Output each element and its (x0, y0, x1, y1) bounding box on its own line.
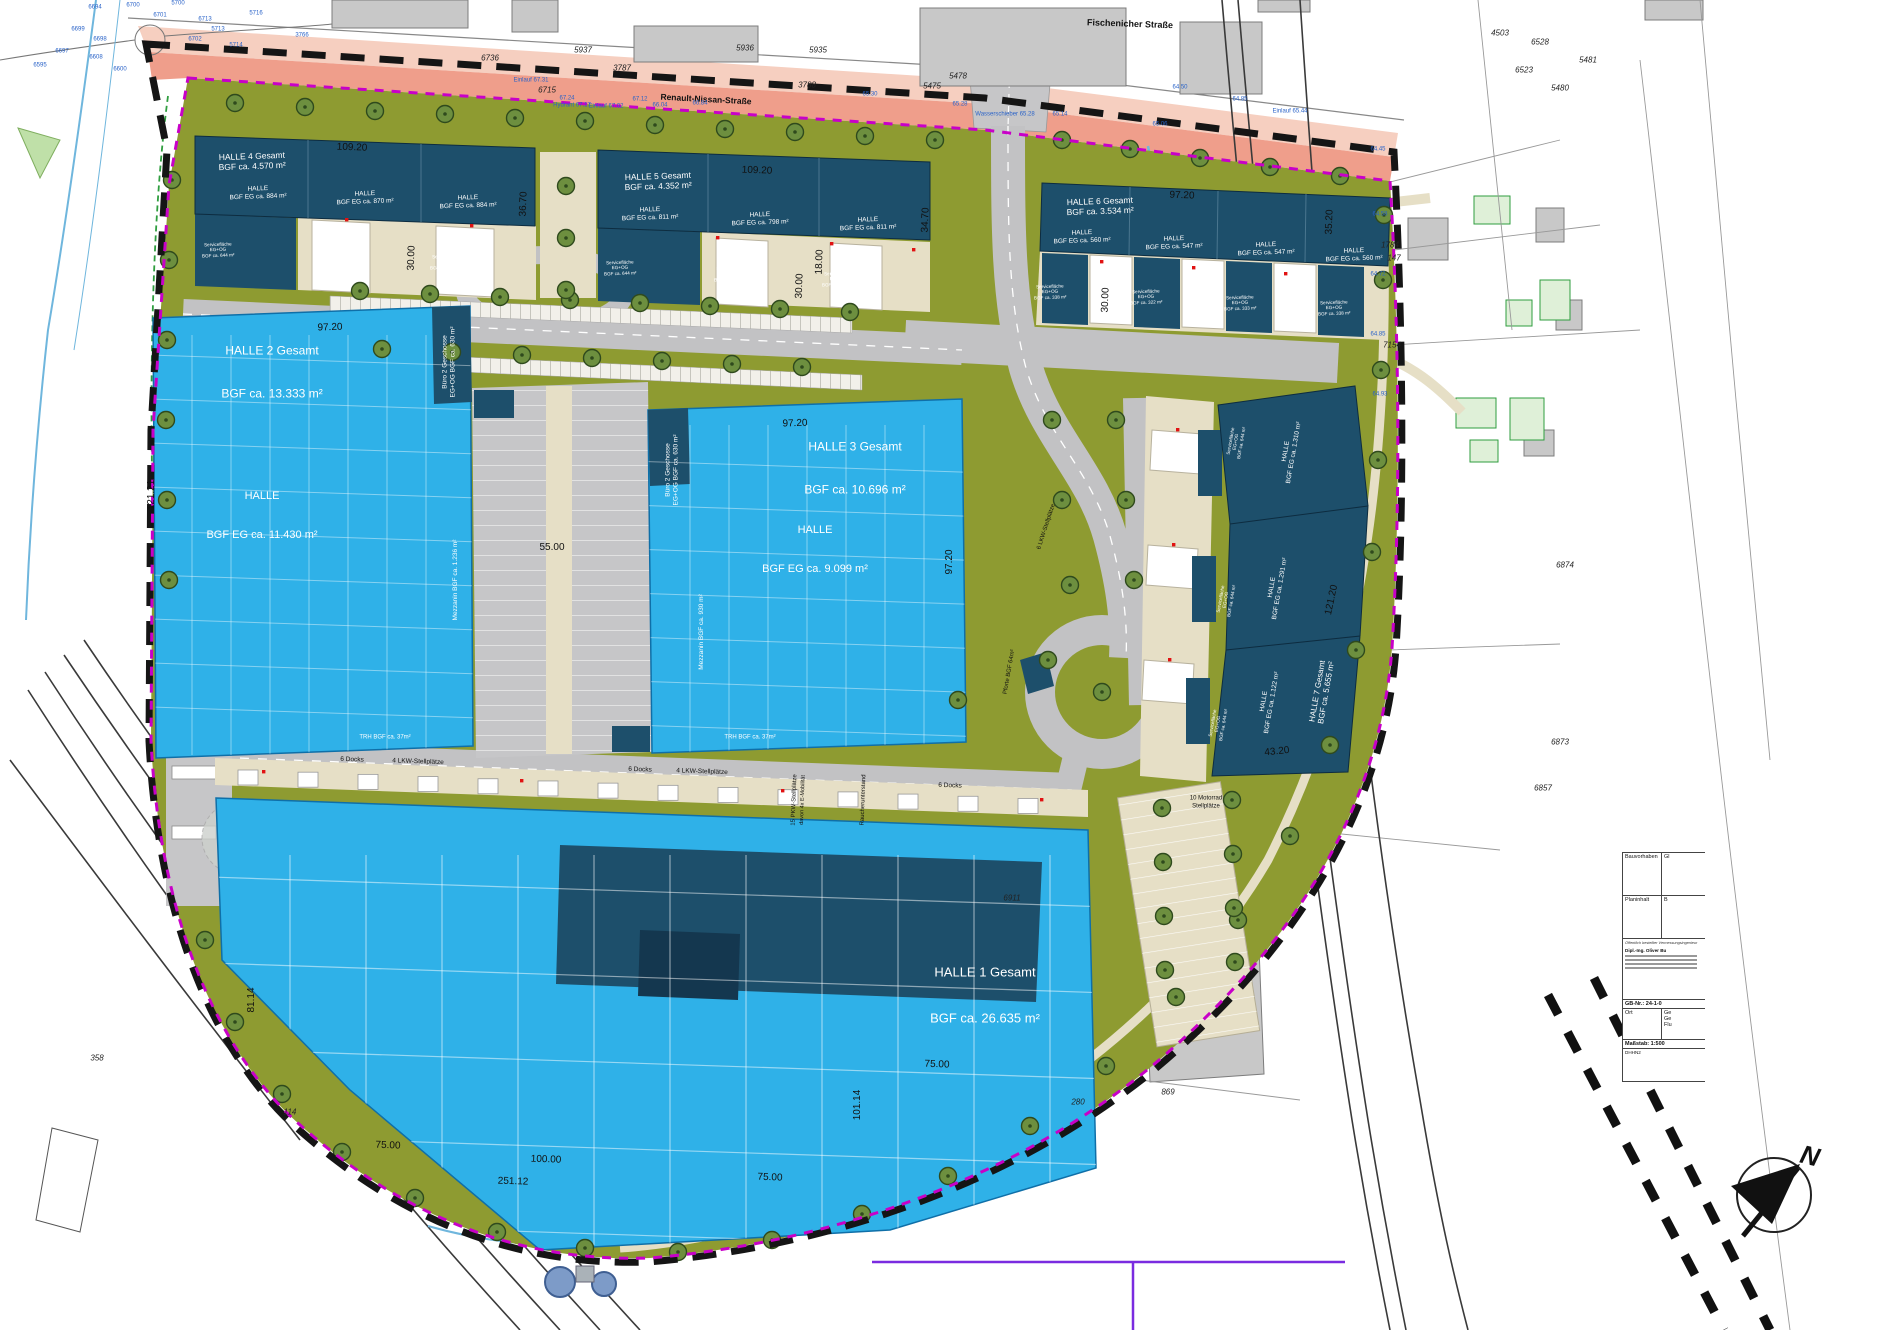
site-area (0, 78, 1398, 1297)
north-arrow (1731, 1158, 1811, 1236)
halle-4-building (195, 136, 535, 226)
halle-7-building (1212, 386, 1368, 776)
utility-purple-line (872, 1262, 1345, 1330)
halle-2-building (153, 306, 473, 758)
site-plan-canvas: 109.20109.2097.2036.7030.0030.0018.0034.… (0, 0, 1901, 1330)
halle-6-building (1040, 183, 1390, 266)
site-plan-drawing (0, 0, 1901, 1330)
halle-5-building (598, 150, 930, 240)
